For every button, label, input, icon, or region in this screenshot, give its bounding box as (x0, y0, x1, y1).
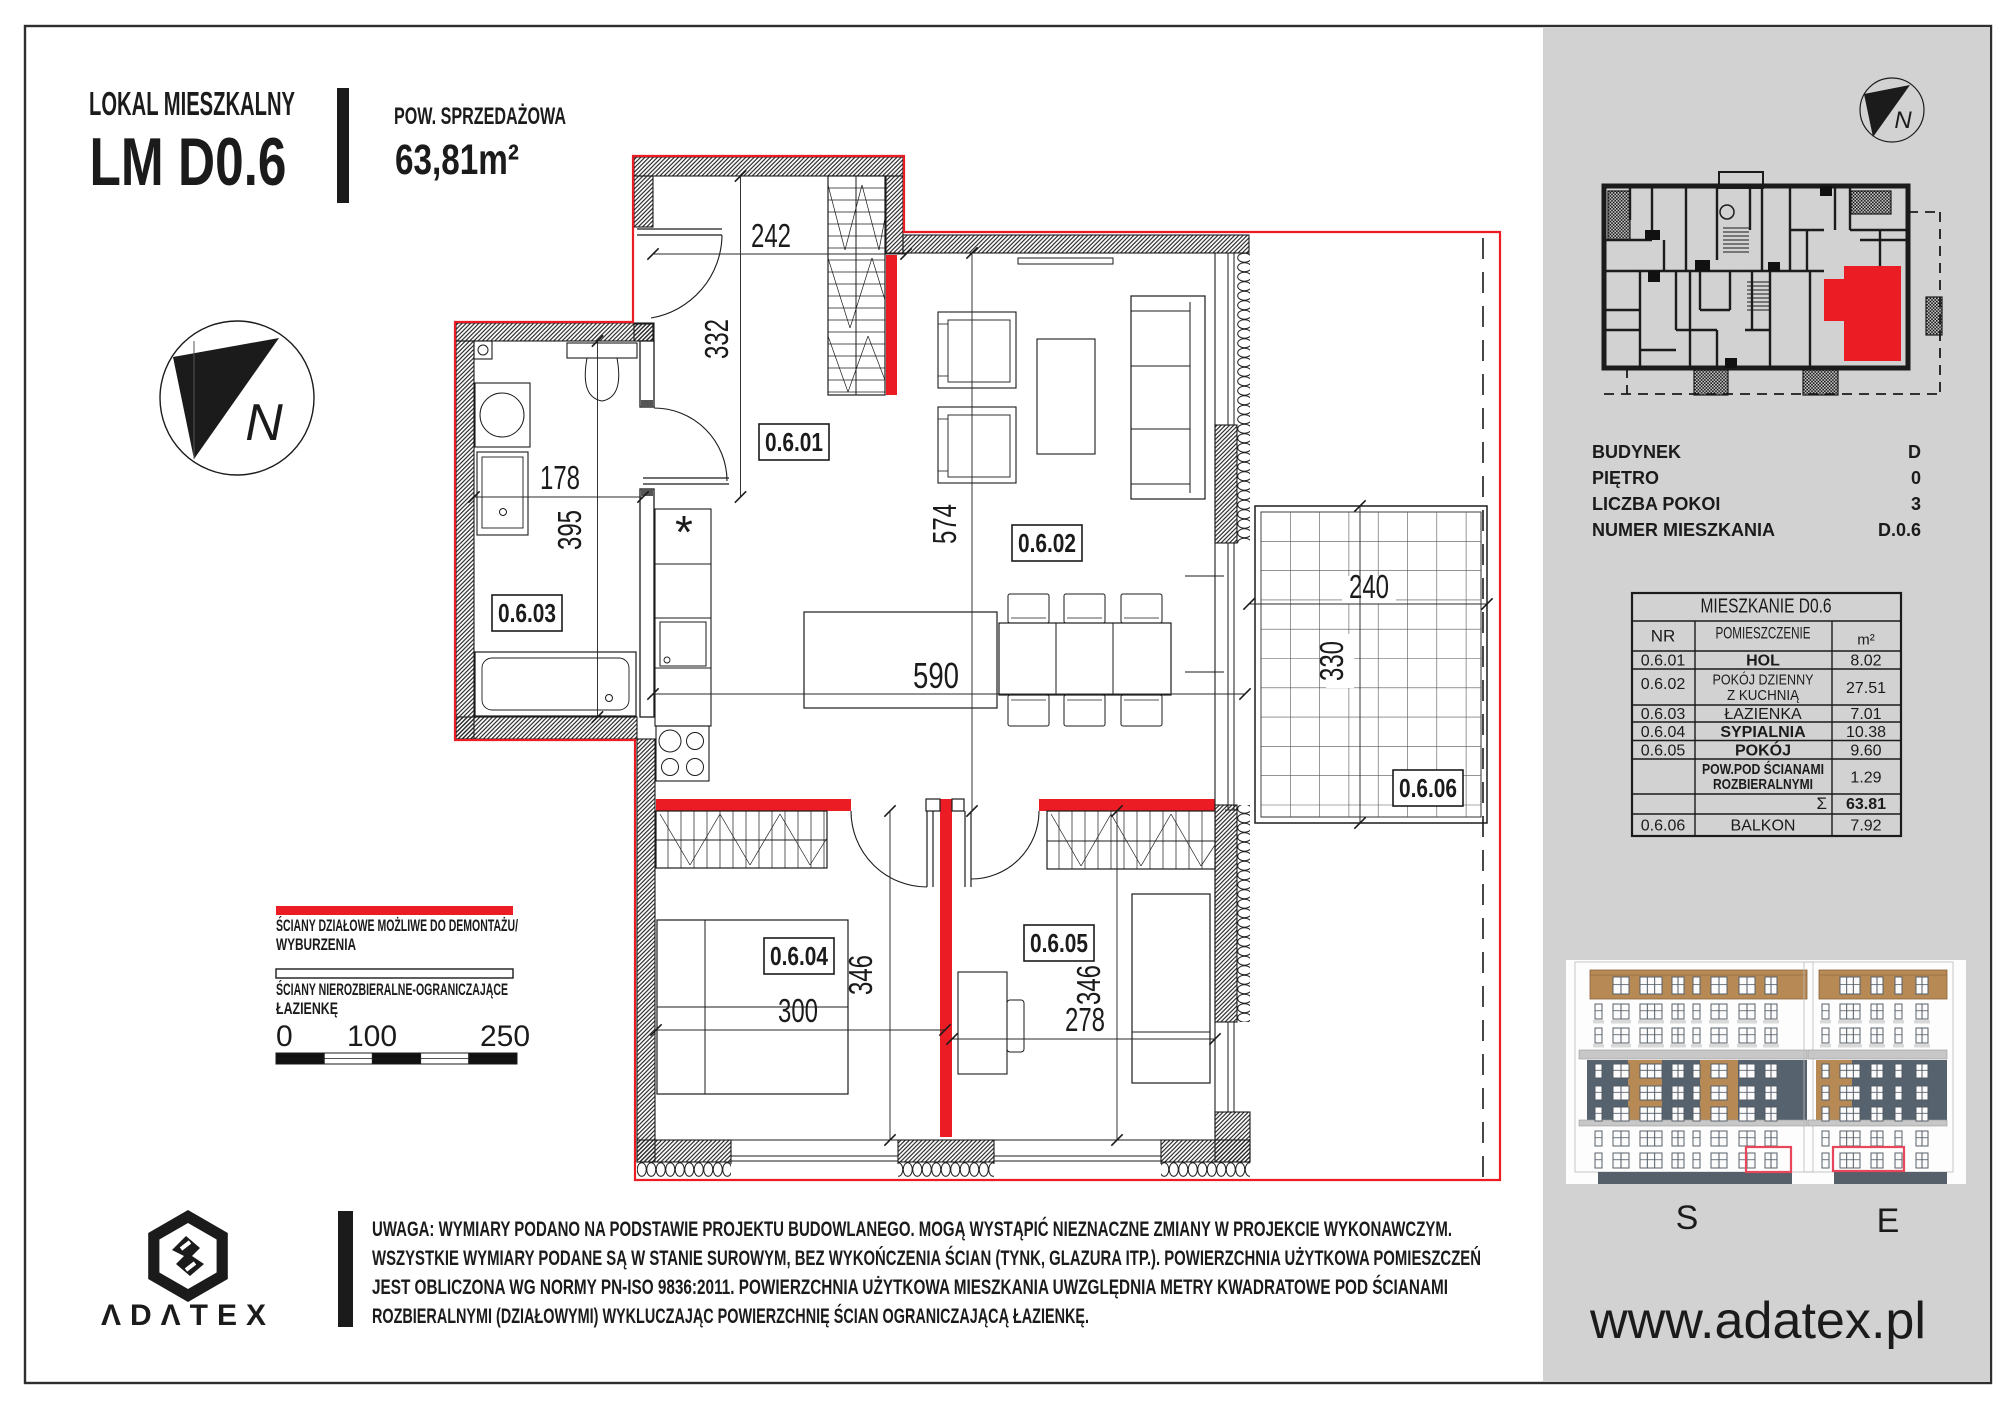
svg-text:1.29: 1.29 (1850, 770, 1881, 787)
svg-text:63.81: 63.81 (1846, 796, 1886, 813)
svg-text:0.6.01: 0.6.01 (765, 427, 823, 457)
svg-text:63,81m²: 63,81m² (395, 136, 519, 184)
svg-text:POW. SPRZEDAŻOWA: POW. SPRZEDAŻOWA (394, 103, 566, 130)
svg-text:Z KUCHNIĄ: Z KUCHNIĄ (1727, 687, 1800, 704)
svg-text:S: S (1676, 1199, 1699, 1237)
svg-text:N: N (245, 394, 283, 452)
svg-text:LOKAL MIESZKALNY: LOKAL MIESZKALNY (89, 85, 295, 122)
svg-text:POKÓJ: POKÓJ (1735, 740, 1791, 759)
svg-text:0.6.06: 0.6.06 (1399, 773, 1457, 803)
svg-text:D.0.6: D.0.6 (1878, 520, 1921, 540)
svg-text:PIĘTRO: PIĘTRO (1592, 468, 1659, 488)
svg-text:9.60: 9.60 (1850, 742, 1881, 759)
svg-text:0.6.05: 0.6.05 (1641, 742, 1686, 759)
svg-text:Σ: Σ (1816, 794, 1827, 813)
svg-text:LICZBA POKOI: LICZBA POKOI (1592, 494, 1720, 514)
svg-text:JEST OBLICZONA WG NORMY PN-ISO: JEST OBLICZONA WG NORMY PN-ISO 9836:2011… (372, 1275, 1448, 1299)
svg-text:0.6.02: 0.6.02 (1018, 528, 1076, 558)
svg-text:346: 346 (1070, 965, 1107, 1005)
svg-text:0.6.04: 0.6.04 (1641, 724, 1686, 741)
svg-text:346: 346 (842, 955, 879, 995)
svg-text:0.6.03: 0.6.03 (1641, 706, 1686, 723)
svg-text:0.6.03: 0.6.03 (498, 598, 556, 628)
svg-text:278: 278 (1065, 1001, 1105, 1038)
svg-text:ŁAZIENKĘ: ŁAZIENKĘ (276, 1000, 338, 1018)
svg-text:ŚCIANY DZIAŁOWE MOŻLIWE DO DEM: ŚCIANY DZIAŁOWE MOŻLIWE DO DEMONTAŻU/ (276, 916, 518, 935)
svg-text:BALKON: BALKON (1731, 818, 1796, 835)
svg-text:300: 300 (778, 992, 818, 1029)
svg-text:WSZYSTKIE WYMIARY PODANE SĄ W: WSZYSTKIE WYMIARY PODANE SĄ W STANIE SUR… (372, 1246, 1481, 1270)
svg-text:ROZBIERALNYMI (DZIAŁOWYMI) WYK: ROZBIERALNYMI (DZIAŁOWYMI) WYKLUCZAJĄC P… (372, 1304, 1089, 1328)
svg-text:SYPIALNIA: SYPIALNIA (1720, 724, 1806, 741)
svg-text:178: 178 (540, 459, 580, 496)
svg-text:POKÓJ DZIENNY: POKÓJ DZIENNY (1713, 672, 1814, 689)
svg-text:NUMER MIESZKANIA: NUMER MIESZKANIA (1592, 520, 1775, 540)
svg-text:250: 250 (480, 1020, 530, 1053)
svg-text:*: * (675, 506, 693, 558)
svg-text:0.6.01: 0.6.01 (1641, 653, 1686, 670)
svg-text:590: 590 (913, 655, 959, 696)
svg-text:N: N (1894, 107, 1912, 134)
svg-text:D: D (1908, 442, 1921, 462)
svg-text:100: 100 (347, 1020, 397, 1053)
svg-text:395: 395 (551, 510, 588, 550)
svg-text:MIESZKANIE D0.6: MIESZKANIE D0.6 (1701, 596, 1832, 618)
svg-text:www.adatex.pl: www.adatex.pl (1589, 1292, 1926, 1350)
svg-text:0.6.02: 0.6.02 (1641, 676, 1686, 693)
svg-text:7.92: 7.92 (1850, 818, 1881, 835)
svg-text:HOL: HOL (1746, 653, 1780, 670)
svg-text:0: 0 (276, 1020, 293, 1053)
svg-text:ΛDΛTEX: ΛDΛTEX (101, 1299, 275, 1332)
svg-text:7.01: 7.01 (1850, 706, 1881, 723)
svg-text:ROZBIERALNYMI: ROZBIERALNYMI (1713, 776, 1813, 793)
svg-text:330: 330 (1313, 641, 1350, 681)
svg-text:10.38: 10.38 (1846, 724, 1886, 741)
svg-text:0: 0 (1911, 468, 1921, 488)
svg-text:UWAGA: WYMIARY PODANO NA PODST: UWAGA: WYMIARY PODANO NA PODSTAWIE PROJE… (372, 1217, 1452, 1241)
svg-text:ŁAZIENKA: ŁAZIENKA (1724, 706, 1802, 723)
svg-text:LM D0.6: LM D0.6 (90, 124, 287, 200)
svg-text:27.51: 27.51 (1846, 680, 1886, 697)
svg-text:NR: NR (1651, 627, 1676, 646)
svg-text:BUDYNEK: BUDYNEK (1592, 442, 1681, 462)
svg-text:242: 242 (751, 217, 791, 254)
svg-text:332: 332 (698, 319, 735, 359)
svg-text:240: 240 (1349, 568, 1389, 605)
svg-text:574: 574 (926, 504, 963, 544)
svg-text:0.6.05: 0.6.05 (1030, 928, 1088, 958)
svg-text:0.6.04: 0.6.04 (770, 941, 828, 971)
svg-text:0.6.06: 0.6.06 (1641, 818, 1686, 835)
svg-text:8.02: 8.02 (1850, 653, 1881, 670)
svg-text:E: E (1877, 1202, 1900, 1240)
svg-text:WYBURZENIA: WYBURZENIA (276, 936, 356, 954)
svg-text:3: 3 (1911, 494, 1921, 514)
svg-text:POMIESZCZENIE: POMIESZCZENIE (1716, 624, 1811, 643)
svg-text:ŚCIANY NIEROZBIERALNE-OGRANICZ: ŚCIANY NIEROZBIERALNE-OGRANICZAJĄCE (276, 980, 508, 999)
svg-text:m²: m² (1857, 632, 1875, 649)
